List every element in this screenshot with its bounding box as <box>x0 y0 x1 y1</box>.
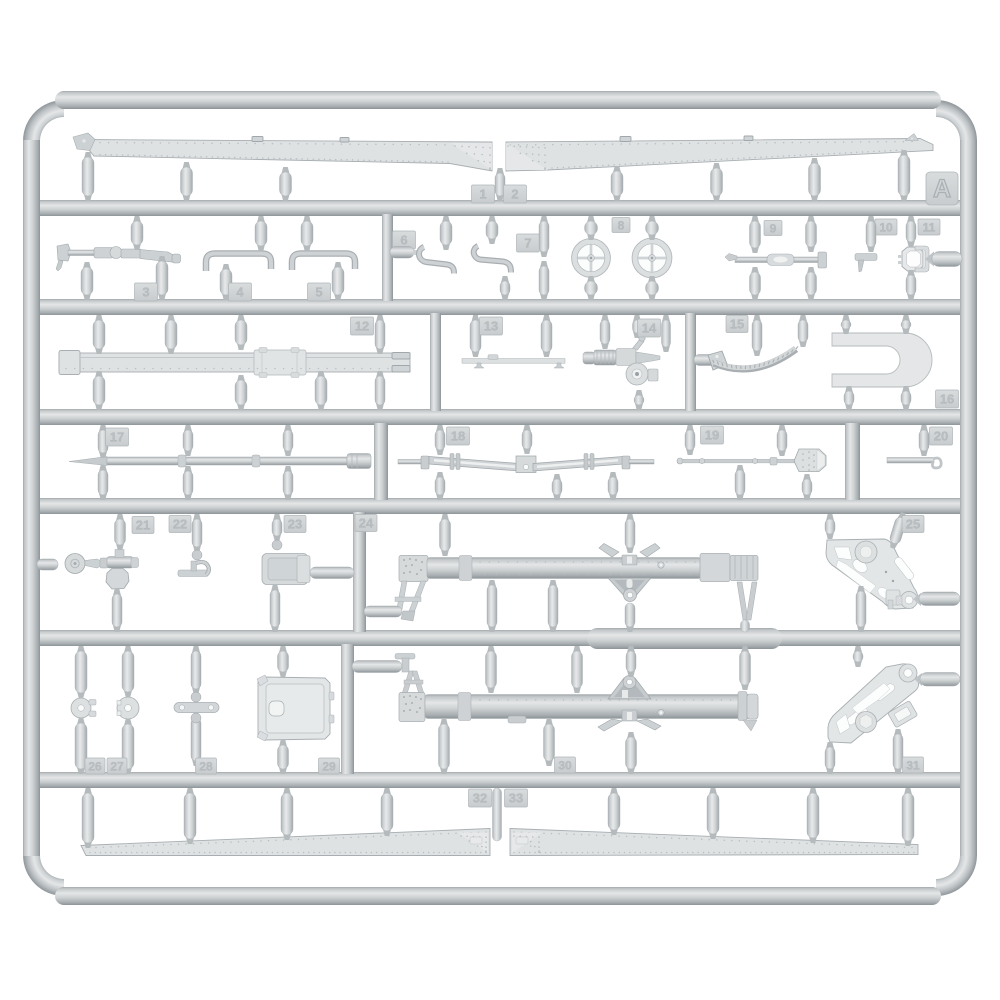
svg-text:2: 2 <box>511 187 518 202</box>
svg-text:12: 12 <box>355 319 369 334</box>
svg-text:14: 14 <box>642 321 657 336</box>
svg-text:10: 10 <box>879 220 893 234</box>
svg-text:4: 4 <box>236 285 244 300</box>
svg-text:18: 18 <box>451 429 465 444</box>
svg-text:28: 28 <box>199 759 213 773</box>
svg-text:32: 32 <box>473 791 487 806</box>
svg-text:A: A <box>933 175 951 203</box>
svg-text:8: 8 <box>618 218 625 232</box>
svg-text:9: 9 <box>770 221 777 235</box>
svg-text:27: 27 <box>110 759 124 773</box>
svg-text:25: 25 <box>906 517 920 532</box>
svg-text:5: 5 <box>315 285 322 300</box>
svg-text:33: 33 <box>509 791 523 806</box>
svg-text:13: 13 <box>484 319 498 334</box>
svg-text:23: 23 <box>288 517 302 532</box>
svg-text:31: 31 <box>906 758 920 772</box>
svg-text:19: 19 <box>705 428 719 443</box>
svg-text:6: 6 <box>400 233 407 248</box>
svg-text:3: 3 <box>142 285 149 300</box>
svg-text:1: 1 <box>479 187 486 202</box>
svg-text:26: 26 <box>88 759 102 773</box>
svg-text:11: 11 <box>923 220 936 234</box>
svg-text:21: 21 <box>136 518 150 533</box>
svg-text:22: 22 <box>173 517 187 532</box>
svg-text:17: 17 <box>110 430 124 445</box>
svg-text:24: 24 <box>359 516 374 531</box>
svg-text:15: 15 <box>730 317 744 332</box>
svg-text:16: 16 <box>940 392 954 407</box>
svg-text:7: 7 <box>524 236 531 251</box>
svg-text:29: 29 <box>322 759 336 773</box>
svg-text:20: 20 <box>934 429 948 444</box>
svg-text:30: 30 <box>558 758 572 772</box>
